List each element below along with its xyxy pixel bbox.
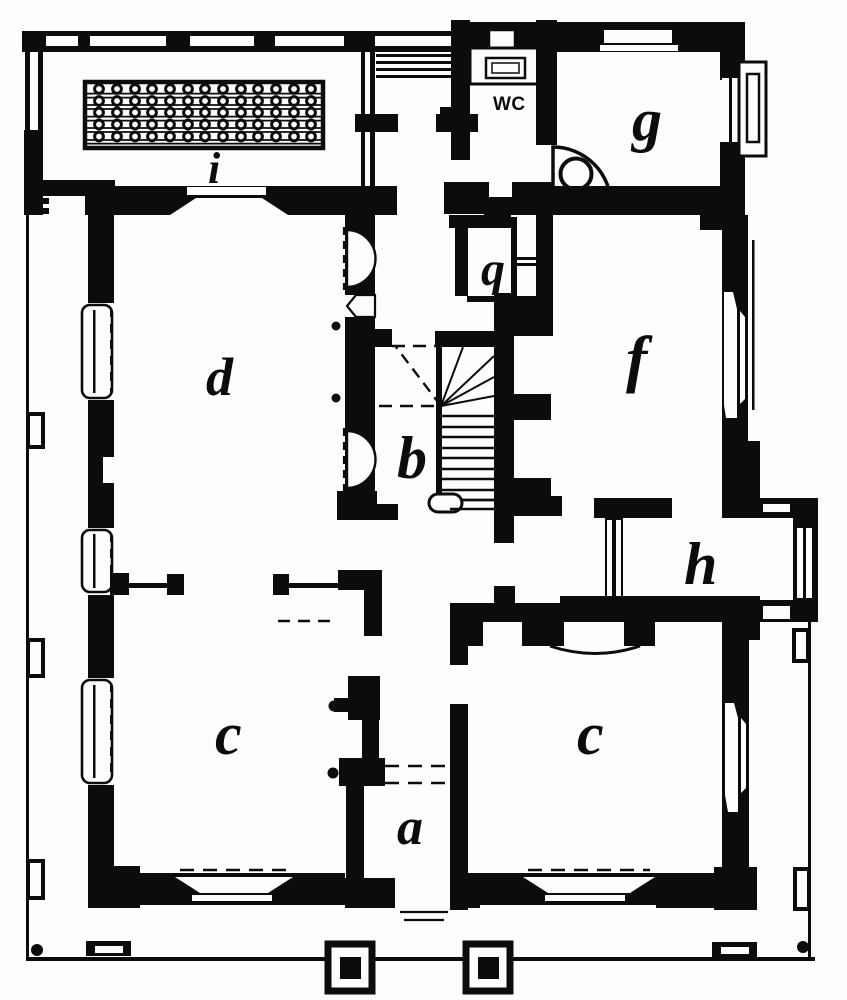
svg-text:g: g (630, 87, 662, 153)
svg-text:WC: WC (493, 94, 526, 115)
svg-text:q: q (481, 243, 505, 296)
svg-text:a: a (397, 799, 423, 856)
svg-text:c: c (215, 701, 242, 767)
svg-text:i: i (208, 144, 221, 193)
svg-text:b: b (397, 425, 427, 491)
svg-text:d: d (206, 347, 234, 407)
svg-text:c: c (577, 701, 604, 767)
svg-text:h: h (684, 531, 717, 597)
